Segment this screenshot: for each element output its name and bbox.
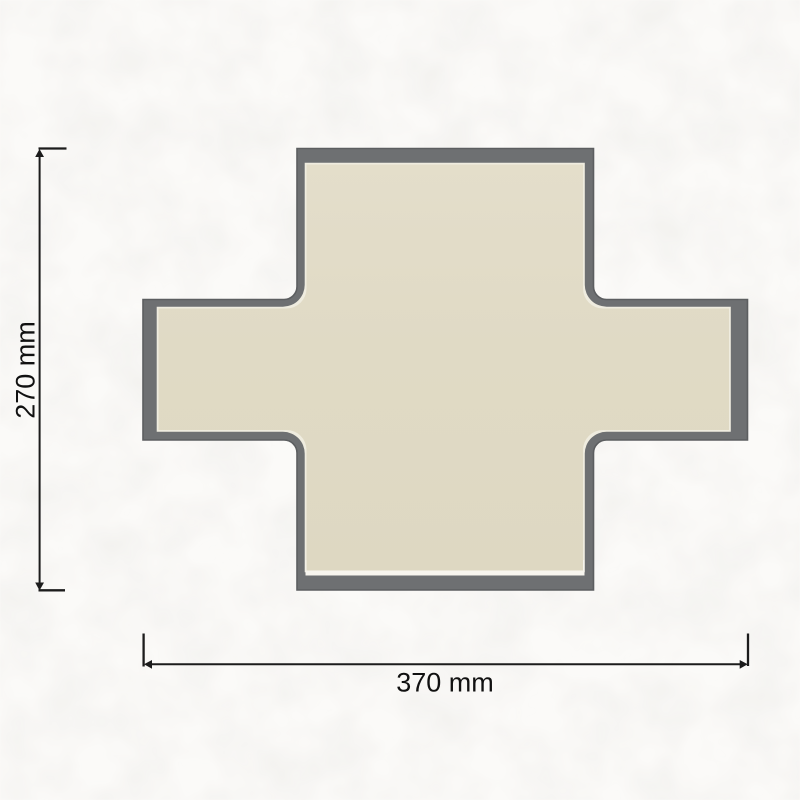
svg-text:270 mm: 270 mm [11,321,41,419]
svg-text:370 mm: 370 mm [396,668,494,698]
